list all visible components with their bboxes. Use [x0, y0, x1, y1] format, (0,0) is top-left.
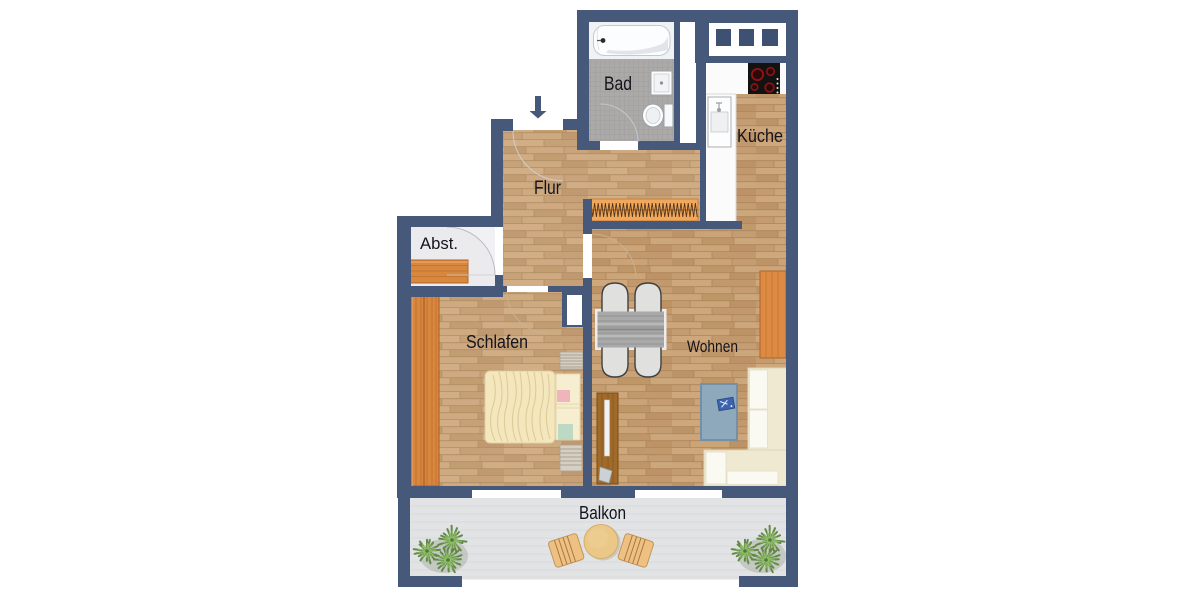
svg-text:Bad: Bad	[604, 74, 632, 95]
svg-text:Wohnen: Wohnen	[687, 337, 738, 356]
svg-text:Schlafen: Schlafen	[466, 332, 528, 352]
svg-text:Flur: Flur	[534, 178, 562, 199]
svg-text:Abst.: Abst.	[420, 234, 458, 253]
svg-text:Küche: Küche	[737, 126, 783, 146]
svg-text:Balkon: Balkon	[579, 502, 626, 523]
